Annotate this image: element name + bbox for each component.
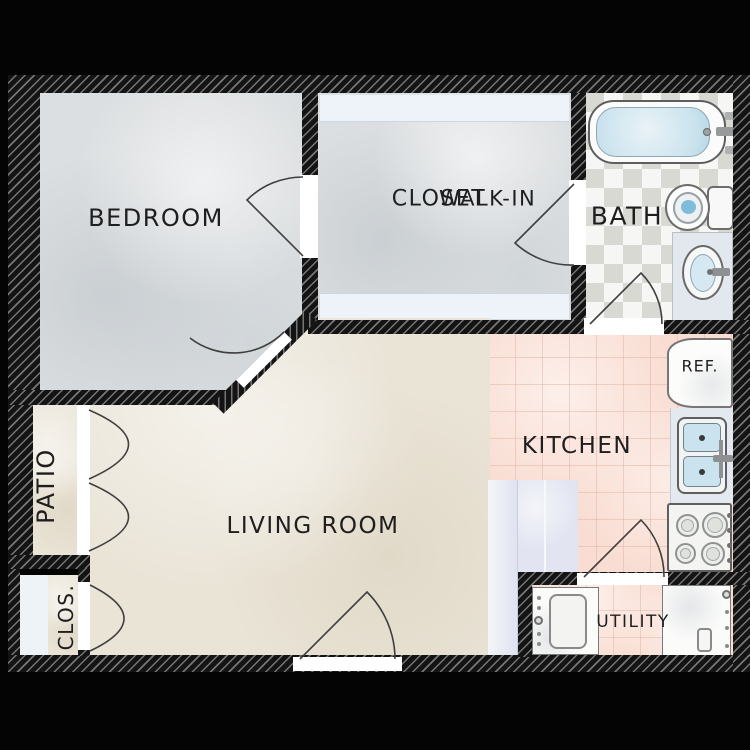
bath-label: BATH xyxy=(591,202,663,231)
washer-knob xyxy=(537,632,541,636)
washer-knob xyxy=(537,596,541,600)
refrigerator-label: REF. xyxy=(682,357,719,376)
wall xyxy=(78,568,90,582)
bathroom-faucet xyxy=(707,269,713,275)
wall xyxy=(8,75,40,405)
door-opening-bath xyxy=(584,318,664,335)
entry-door-opening xyxy=(293,657,402,671)
closet-shelf xyxy=(320,293,569,319)
kitchen-counter xyxy=(518,480,578,573)
dryer-latch xyxy=(697,628,712,652)
patio-door-opening xyxy=(77,405,90,555)
stove-knob xyxy=(727,543,732,548)
kitchen-counter xyxy=(488,480,518,657)
closet-shelf xyxy=(320,95,569,122)
bathtub-water xyxy=(596,107,710,157)
wall xyxy=(8,75,750,93)
toilet-water xyxy=(681,200,696,214)
walk-in-closet-label-line1: WALK-IN xyxy=(439,185,536,214)
wall xyxy=(78,650,90,656)
stove-knob xyxy=(727,528,732,533)
closet-label: CLOS. xyxy=(54,584,78,651)
living-room-label: LIVING ROOM xyxy=(227,513,400,539)
patio-label: PATIO xyxy=(32,448,60,524)
wall xyxy=(8,390,230,405)
kitchen-label: KITCHEN xyxy=(522,433,632,459)
sink-drain xyxy=(699,435,705,441)
utility-label: UTILITY xyxy=(596,612,670,632)
sink-drain xyxy=(699,469,705,475)
wall xyxy=(8,403,33,568)
door-opening-bedroom xyxy=(300,175,318,258)
closet-shelf xyxy=(18,575,48,657)
washer-door xyxy=(549,594,587,649)
floor-plan: BEDROOM WALK-IN CLOSET BATH KITCHEN LIVI… xyxy=(0,0,750,750)
closet-door-opening xyxy=(78,582,90,650)
bathtub-faucet xyxy=(716,127,734,136)
bathtub-drain xyxy=(703,128,711,136)
dryer-knob xyxy=(725,610,729,614)
dryer-dial xyxy=(722,590,731,599)
wall xyxy=(308,320,750,334)
washer-knob xyxy=(537,606,541,610)
washer-dial xyxy=(534,616,543,625)
stove-burner xyxy=(676,514,699,537)
stove-burner xyxy=(702,512,728,538)
bathroom-faucet xyxy=(712,268,730,276)
door-opening-closet xyxy=(569,180,586,265)
walk-in-closet-label: WALK-IN CLOSET xyxy=(339,185,539,214)
wall xyxy=(8,555,90,569)
door-opening-utility xyxy=(577,573,668,585)
dryer-knob xyxy=(725,626,729,630)
stove-burner xyxy=(675,543,696,564)
kitchen-faucet xyxy=(713,455,733,462)
bedroom-label: BEDROOM xyxy=(88,204,224,232)
stove-knob xyxy=(727,513,732,518)
wall xyxy=(518,572,532,657)
toilet-tank xyxy=(707,186,734,230)
stove-burner xyxy=(701,542,725,566)
washer-knob xyxy=(537,642,541,646)
dryer-knob xyxy=(725,644,729,648)
stove-knob xyxy=(727,558,732,563)
